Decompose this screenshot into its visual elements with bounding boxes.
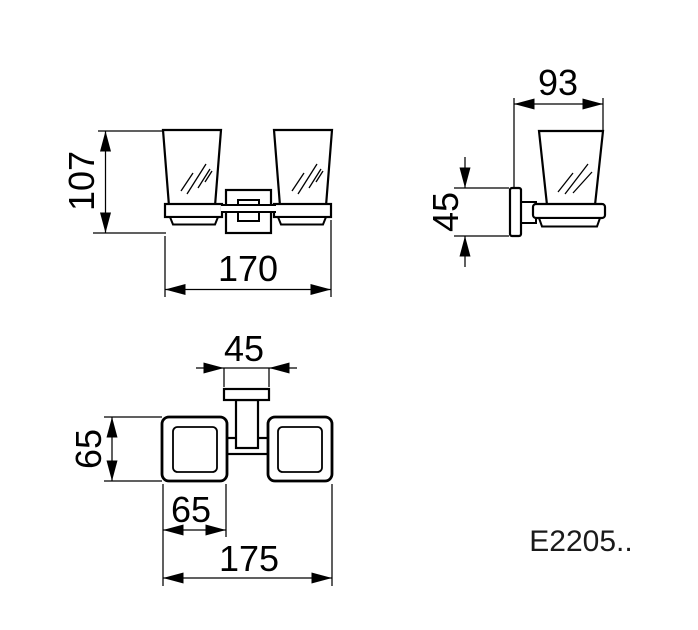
dim-side-depth-label: 93 bbox=[538, 62, 578, 103]
arrow-right-icon bbox=[204, 363, 225, 374]
arrow-left-icon bbox=[163, 573, 184, 584]
dim-plan-holder-depth: 65 bbox=[68, 417, 162, 481]
front-view bbox=[163, 130, 332, 233]
dim-front-height: 107 bbox=[61, 131, 166, 233]
arrow-left-icon bbox=[514, 99, 535, 110]
front-right-ring-lip bbox=[278, 217, 326, 225]
double-tumbler-holder-drawing: 107 170 93 bbox=[0, 0, 698, 630]
front-right-holder-ring bbox=[274, 204, 331, 217]
plan-left-holder-opening bbox=[173, 427, 217, 472]
technical-drawing-page: 107 170 93 bbox=[0, 0, 698, 630]
plan-right-holder-opening bbox=[278, 427, 322, 472]
product-code: E2205.. bbox=[529, 525, 632, 558]
arrow-left-icon bbox=[165, 284, 186, 295]
arrow-down-icon bbox=[460, 168, 471, 189]
side-tumbler bbox=[539, 131, 603, 205]
plan-wall-plate bbox=[224, 389, 269, 400]
dim-front-width-label: 170 bbox=[218, 248, 278, 289]
dim-plan-bracket-width-label: 45 bbox=[224, 328, 264, 369]
dim-front-height-label: 107 bbox=[61, 151, 102, 211]
dim-side-bracket-height-label: 45 bbox=[425, 192, 466, 232]
side-wall-plate bbox=[510, 188, 521, 236]
plan-view bbox=[162, 389, 332, 481]
side-ring-lip bbox=[539, 218, 600, 227]
dim-plan-holder-width: 65 bbox=[163, 484, 226, 537]
side-view bbox=[510, 131, 605, 236]
front-arm-fill bbox=[221, 206, 276, 211]
side-holder-ring bbox=[533, 204, 605, 218]
front-left-ring-lip bbox=[170, 217, 218, 225]
front-right-tumbler bbox=[274, 130, 332, 206]
dim-side-bracket-height: 45 bbox=[425, 157, 509, 267]
dim-plan-total-width-label: 175 bbox=[219, 538, 279, 579]
plan-stem bbox=[236, 400, 258, 448]
arrow-right-icon bbox=[311, 284, 332, 295]
arrow-right-icon bbox=[312, 573, 333, 584]
arrow-up-icon bbox=[100, 131, 111, 152]
arrow-right-icon bbox=[583, 99, 604, 110]
arrow-up-icon bbox=[460, 236, 471, 257]
arrow-down-icon bbox=[100, 213, 111, 234]
dim-plan-holder-depth-label: 65 bbox=[68, 429, 109, 469]
dim-plan-holder-width-label: 65 bbox=[171, 489, 211, 530]
front-left-holder-ring bbox=[165, 204, 222, 217]
arrow-left-icon bbox=[269, 363, 290, 374]
front-left-tumbler bbox=[163, 130, 221, 206]
dim-plan-bracket-width: 45 bbox=[196, 328, 297, 387]
